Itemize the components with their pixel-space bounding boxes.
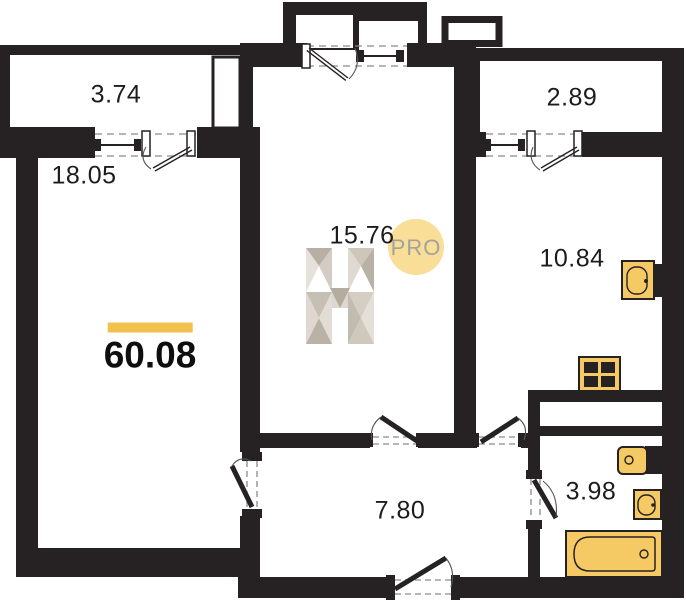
bedroom-door <box>232 452 262 518</box>
room-label-bedroom: 18.05 <box>51 162 116 191</box>
floor-plan: PRO 3.74 18.05 15.76 2.89 10.84 7.80 3.9… <box>0 0 686 600</box>
room-label-balcony-left: 3.74 <box>91 81 142 110</box>
shaft-boxes <box>283 2 499 50</box>
room-label-living: 15.76 <box>329 222 394 251</box>
bathtub-icon <box>566 531 662 577</box>
walls-layer <box>0 43 684 598</box>
stove-icon <box>579 357 620 391</box>
balcony-cabinet <box>213 57 240 128</box>
watermark-pro-label: PRO <box>391 235 442 260</box>
room-label-kitchen: 10.84 <box>539 245 604 274</box>
kitchen-door <box>472 418 526 447</box>
total-area-underline <box>108 323 193 333</box>
kitchen-sink-icon <box>622 261 664 299</box>
windows-layer <box>94 44 582 171</box>
bathroom-sink-icon <box>634 490 661 519</box>
watermark-letter-h <box>306 248 374 344</box>
room-label-balcony-right: 2.89 <box>547 84 598 113</box>
fixtures-layer <box>566 261 664 577</box>
living-door <box>366 417 423 447</box>
kitchen-window <box>484 131 582 171</box>
entrance-door <box>386 558 460 600</box>
bathroom-door <box>526 470 556 529</box>
total-area: 60.08 <box>104 323 197 374</box>
room-label-bathroom: 3.98 <box>566 478 617 507</box>
room-label-corridor: 7.80 <box>375 497 426 526</box>
toilet-icon <box>618 446 662 474</box>
total-area-value: 60.08 <box>104 337 197 374</box>
